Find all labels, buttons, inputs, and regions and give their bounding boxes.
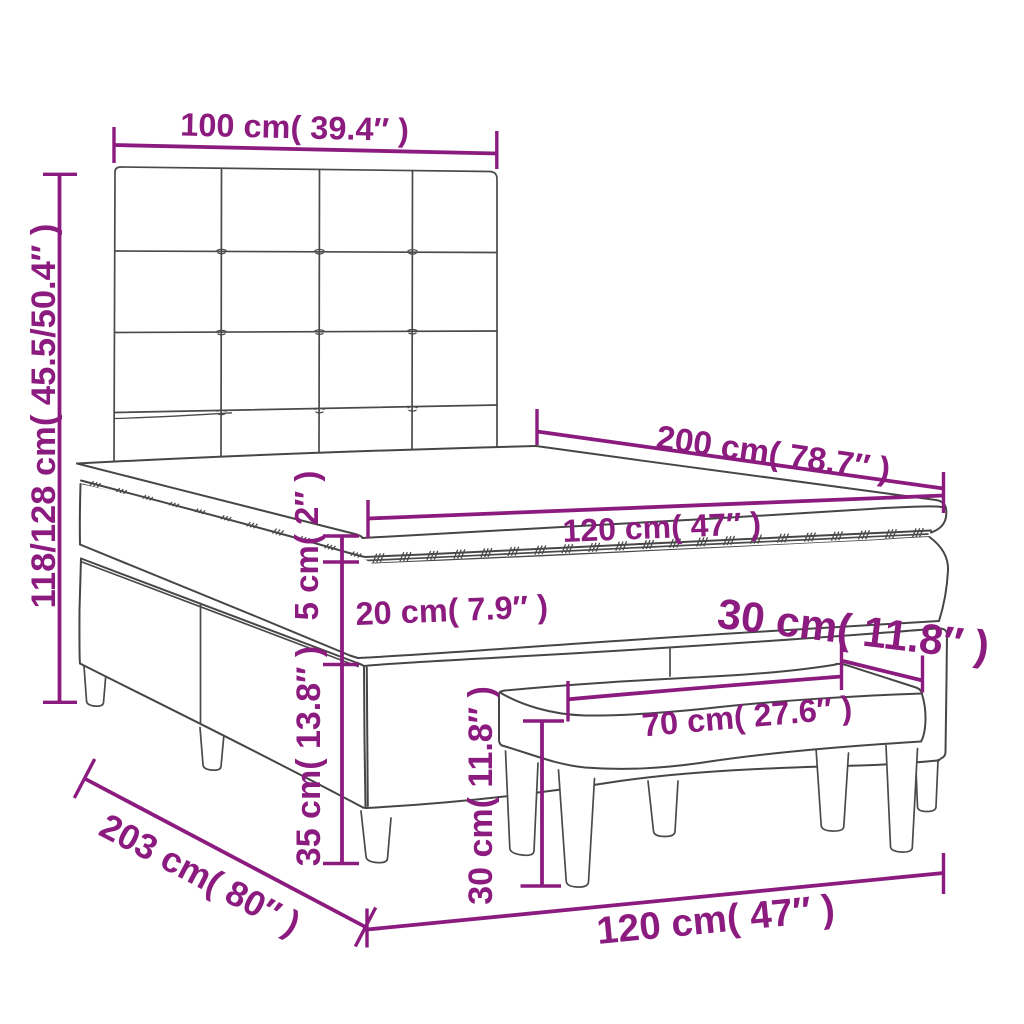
- svg-text:100 cm( 39.4″ ): 100 cm( 39.4″ ): [180, 107, 410, 149]
- svg-text:30 cm( 11.8″ ): 30 cm( 11.8″ ): [462, 686, 500, 905]
- svg-text:118/128 cm( 45.5/50.4″ ): 118/128 cm( 45.5/50.4″ ): [25, 224, 63, 609]
- svg-text:5 cm( 2″ ): 5 cm( 2″ ): [288, 471, 325, 621]
- svg-text:35 cm( 13.8″ ): 35 cm( 13.8″ ): [290, 646, 328, 866]
